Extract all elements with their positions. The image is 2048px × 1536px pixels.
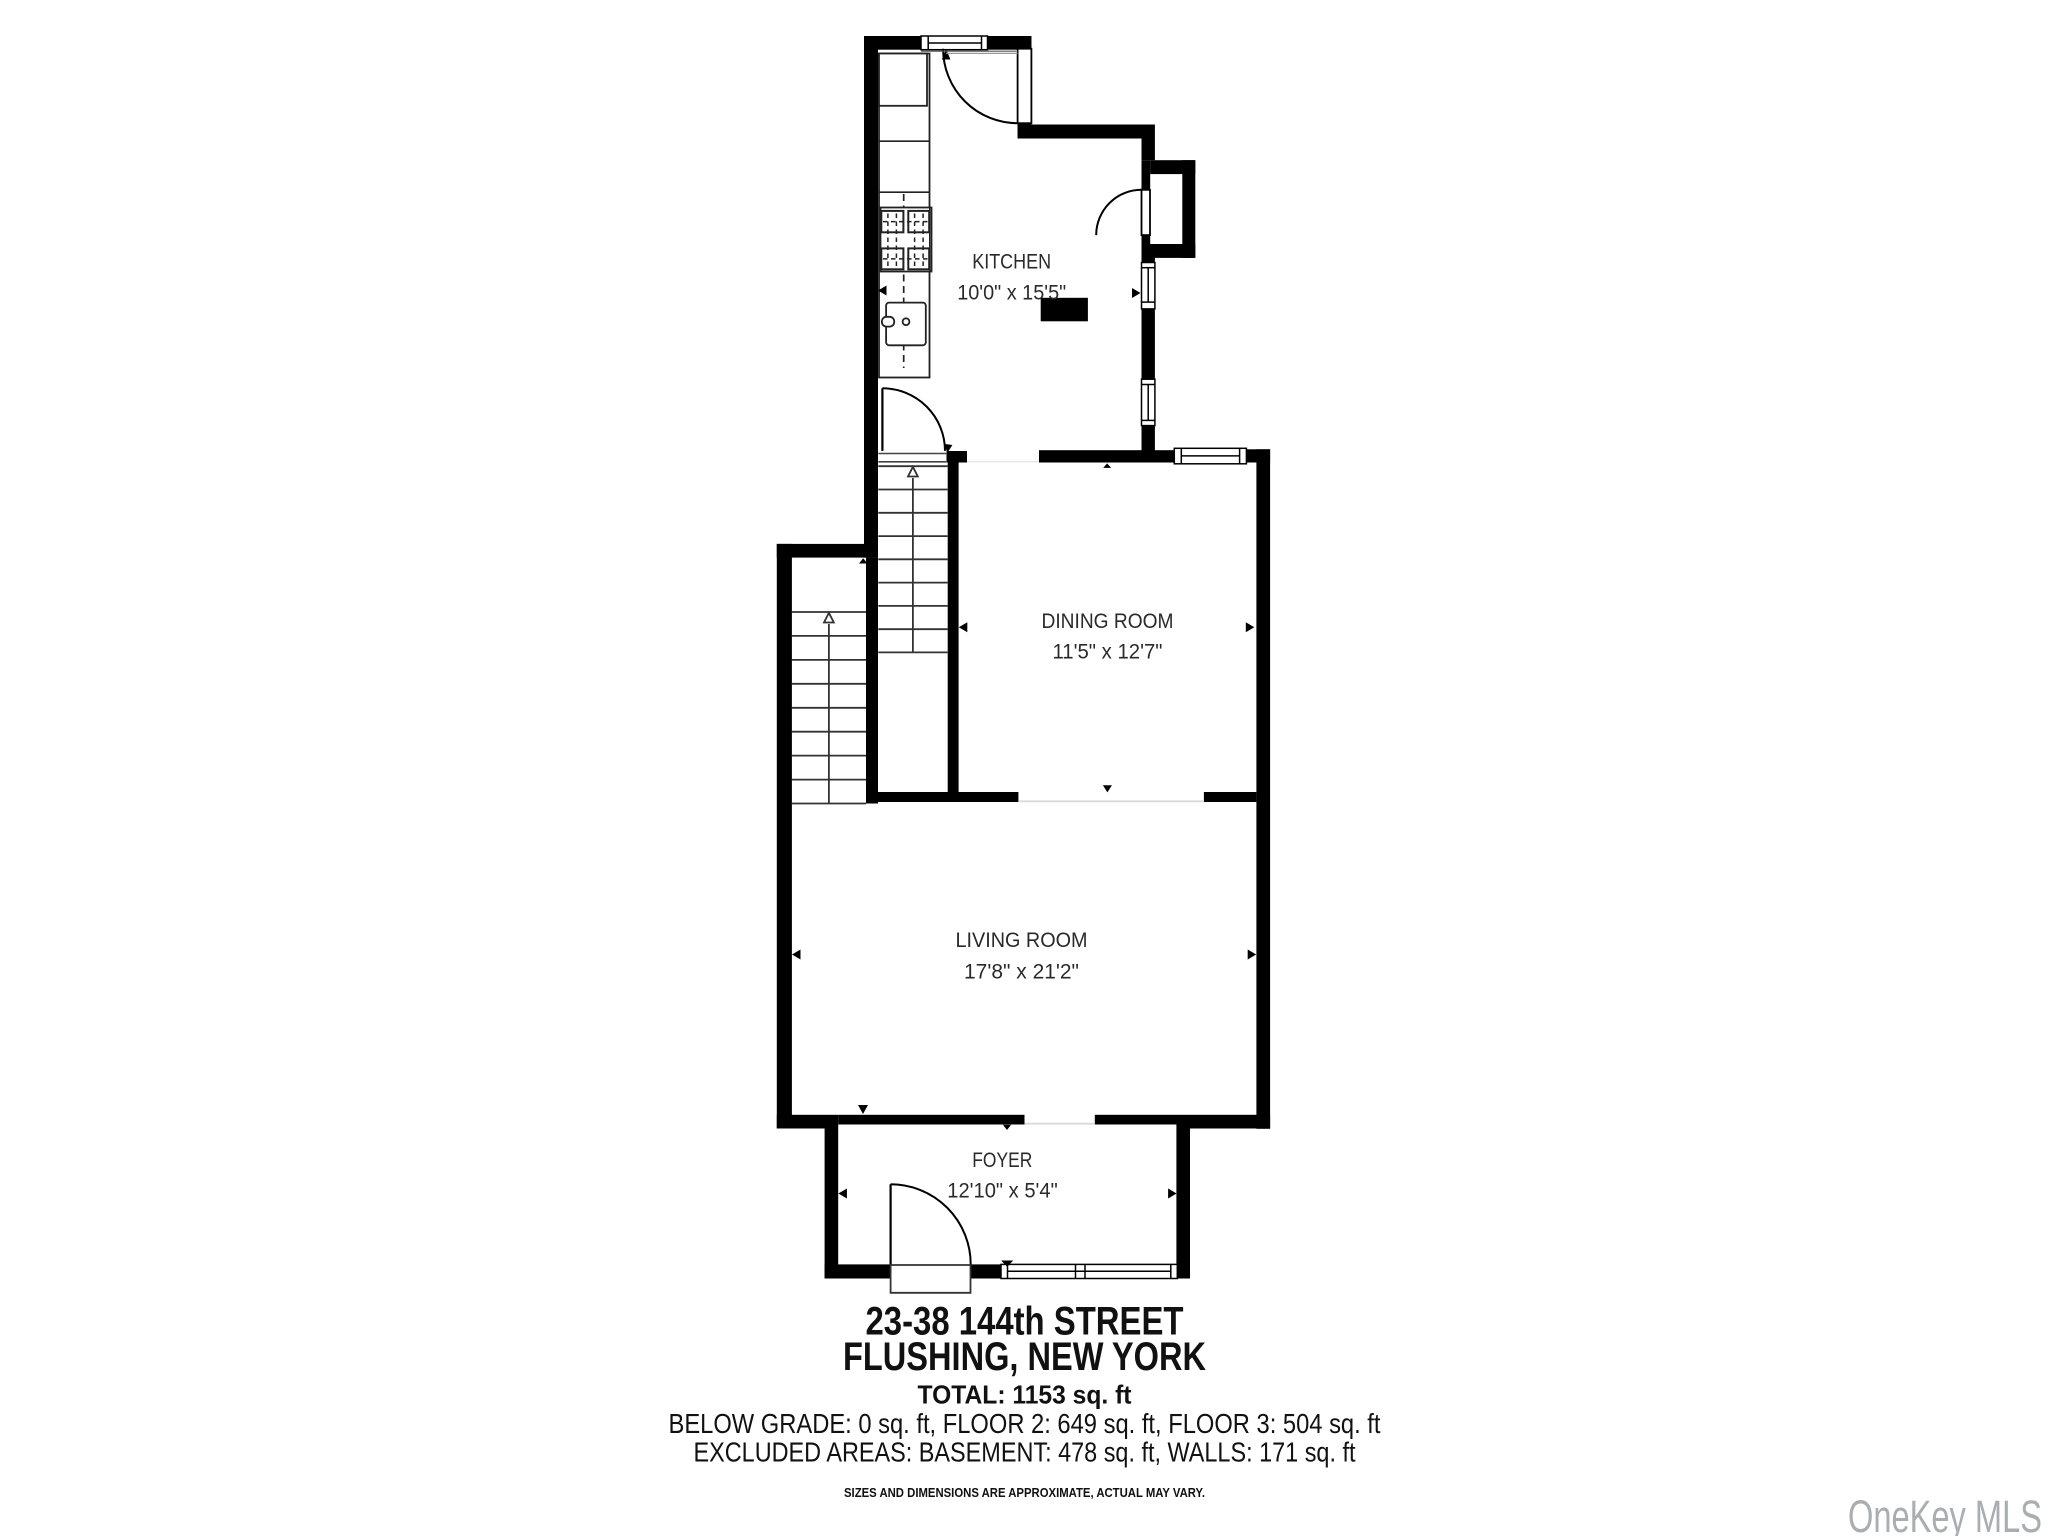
svg-text:OneKey MLS: OneKey MLS: [1848, 1491, 2042, 1536]
svg-text:FOYER: FOYER: [972, 1148, 1032, 1172]
svg-text:TOTAL: 1153 sq. ft: TOTAL: 1153 sq. ft: [918, 1380, 1132, 1410]
svg-text:KITCHEN: KITCHEN: [972, 249, 1051, 273]
svg-text:FLUSHING, NEW YORK: FLUSHING, NEW YORK: [843, 1335, 1206, 1379]
svg-text:DINING ROOM: DINING ROOM: [1042, 609, 1174, 633]
svg-text:12'10" x 5'4": 12'10" x 5'4": [947, 1178, 1058, 1202]
svg-text:10'0" x 15'5": 10'0" x 15'5": [957, 281, 1066, 305]
svg-text:11'5" x 12'7": 11'5" x 12'7": [1053, 640, 1163, 664]
svg-text:SIZES AND DIMENSIONS ARE APPRO: SIZES AND DIMENSIONS ARE APPROXIMATE, AC…: [844, 1486, 1205, 1500]
svg-text:17'8" x 21'2": 17'8" x 21'2": [964, 960, 1079, 984]
svg-text:BELOW GRADE: 0 sq. ft, FLOOR 2: BELOW GRADE: 0 sq. ft, FLOOR 2: 649 sq. …: [669, 1408, 1381, 1439]
svg-text:LIVING ROOM: LIVING ROOM: [956, 928, 1088, 952]
svg-text:EXCLUDED AREAS: BASEMENT: 478: EXCLUDED AREAS: BASEMENT: 478 sq. ft, WA…: [694, 1437, 1356, 1468]
